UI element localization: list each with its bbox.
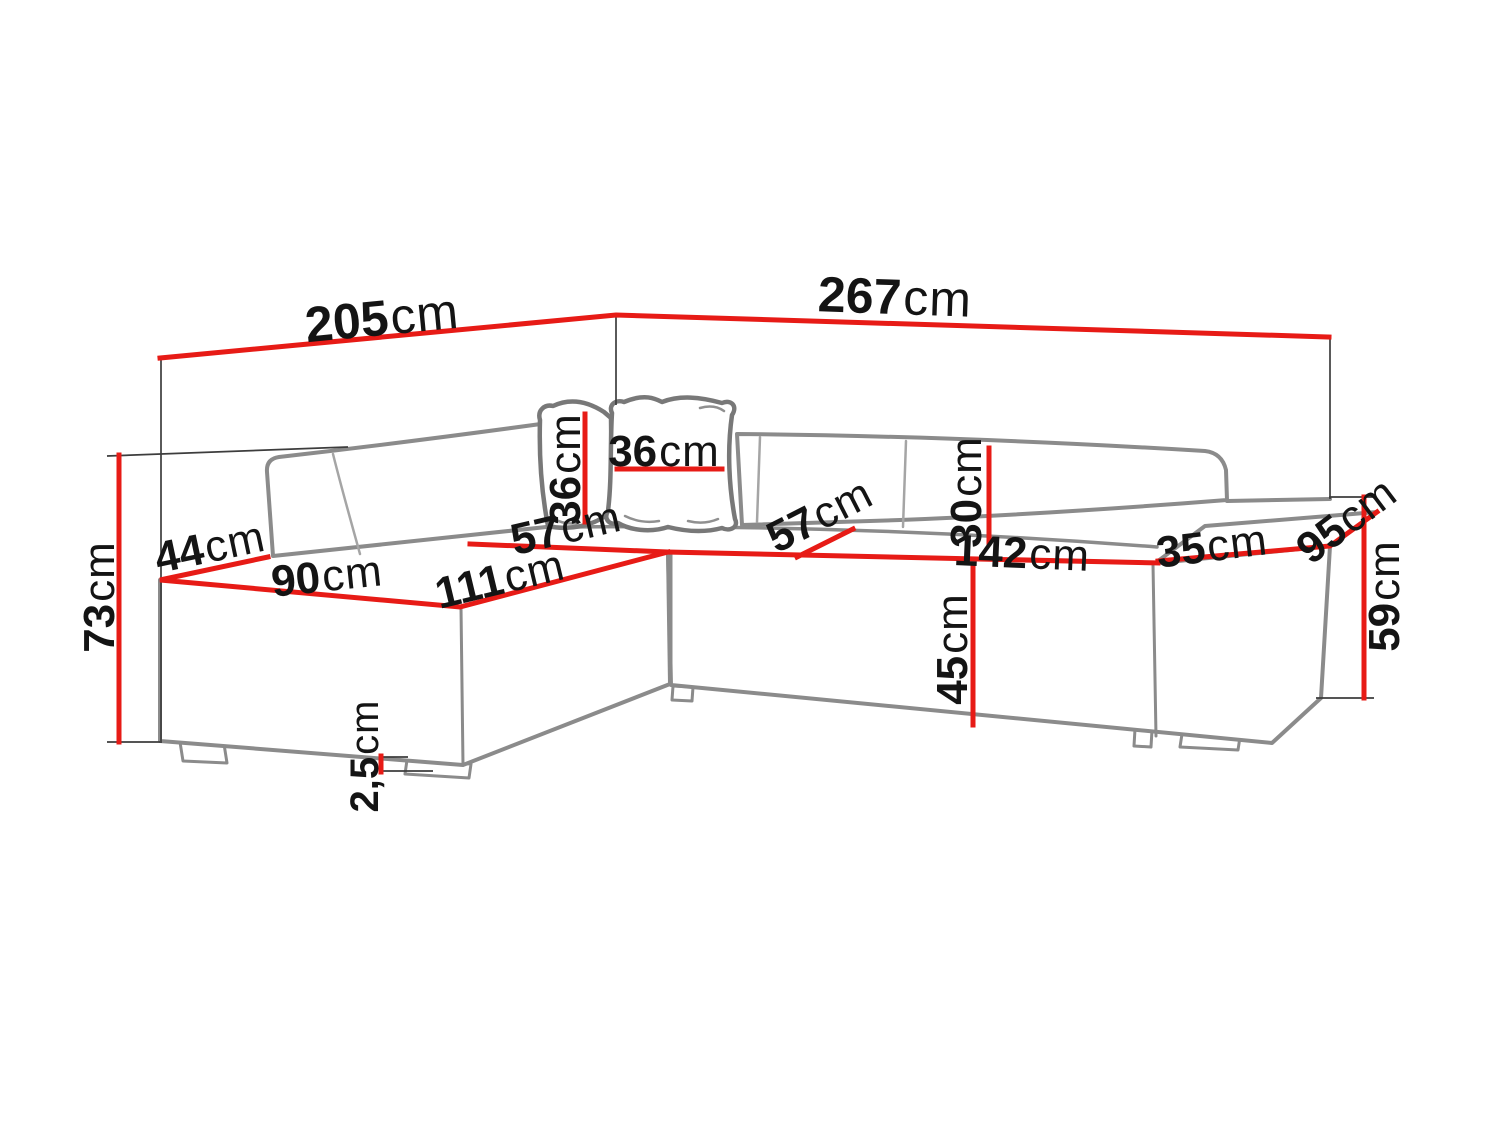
dimension-unit: cm bbox=[541, 413, 590, 474]
dimension-value: 35 bbox=[1154, 523, 1209, 578]
dimension-unit: cm bbox=[388, 283, 462, 345]
dimension-value: 59 bbox=[1360, 603, 1409, 652]
dimension-label-36cm-left-pillow: 36cm bbox=[544, 413, 588, 525]
dimension-value: 45 bbox=[928, 656, 977, 705]
dimension-label-2-5cm: 2,5cm bbox=[345, 700, 385, 813]
dimension-value: 205 bbox=[303, 290, 391, 354]
dimension-label-73cm: 73cm bbox=[78, 541, 122, 653]
chaise-front-seam bbox=[461, 607, 463, 765]
dimension-value: 36 bbox=[608, 427, 657, 476]
dimension-unit: cm bbox=[320, 546, 385, 601]
dimension-label-205cm: 205cm bbox=[303, 286, 461, 351]
dimension-unit: cm bbox=[343, 700, 387, 755]
dimension-unit: cm bbox=[1204, 515, 1270, 571]
dimension-unit: cm bbox=[75, 541, 124, 602]
dimension-value: 90 bbox=[269, 553, 323, 607]
back-edge-right bbox=[1227, 499, 1330, 501]
dimension-unit: cm bbox=[1360, 540, 1409, 601]
dimension-value: 36 bbox=[541, 476, 590, 525]
sofa-dimension-diagram: 205cm 267cm 73cm 44cm 90cm 111cm 57cm 36… bbox=[0, 0, 1500, 1125]
dimension-label-267cm: 267cm bbox=[817, 269, 973, 324]
dimension-label-142cm: 142cm bbox=[953, 529, 1091, 579]
dimension-value: 2,5 bbox=[343, 757, 387, 813]
dimension-unit: cm bbox=[942, 436, 991, 497]
dimension-label-90cm: 90cm bbox=[269, 549, 385, 604]
dimension-value: 73 bbox=[75, 604, 124, 653]
dimension-unit: cm bbox=[659, 427, 720, 476]
chaise-body bbox=[160, 552, 670, 765]
dimension-label-45cm: 45cm bbox=[931, 593, 975, 705]
dimension-value: 267 bbox=[817, 266, 902, 325]
dimension-unit: cm bbox=[1028, 529, 1091, 581]
dimension-label-59cm: 59cm bbox=[1363, 540, 1407, 652]
dimension-value: 142 bbox=[953, 526, 1028, 578]
dimension-value: 44 bbox=[150, 525, 208, 583]
dimension-unit: cm bbox=[902, 269, 973, 327]
dimension-unit: cm bbox=[928, 593, 977, 654]
dimension-label-36cm-right-pillow: 36cm bbox=[608, 430, 720, 474]
